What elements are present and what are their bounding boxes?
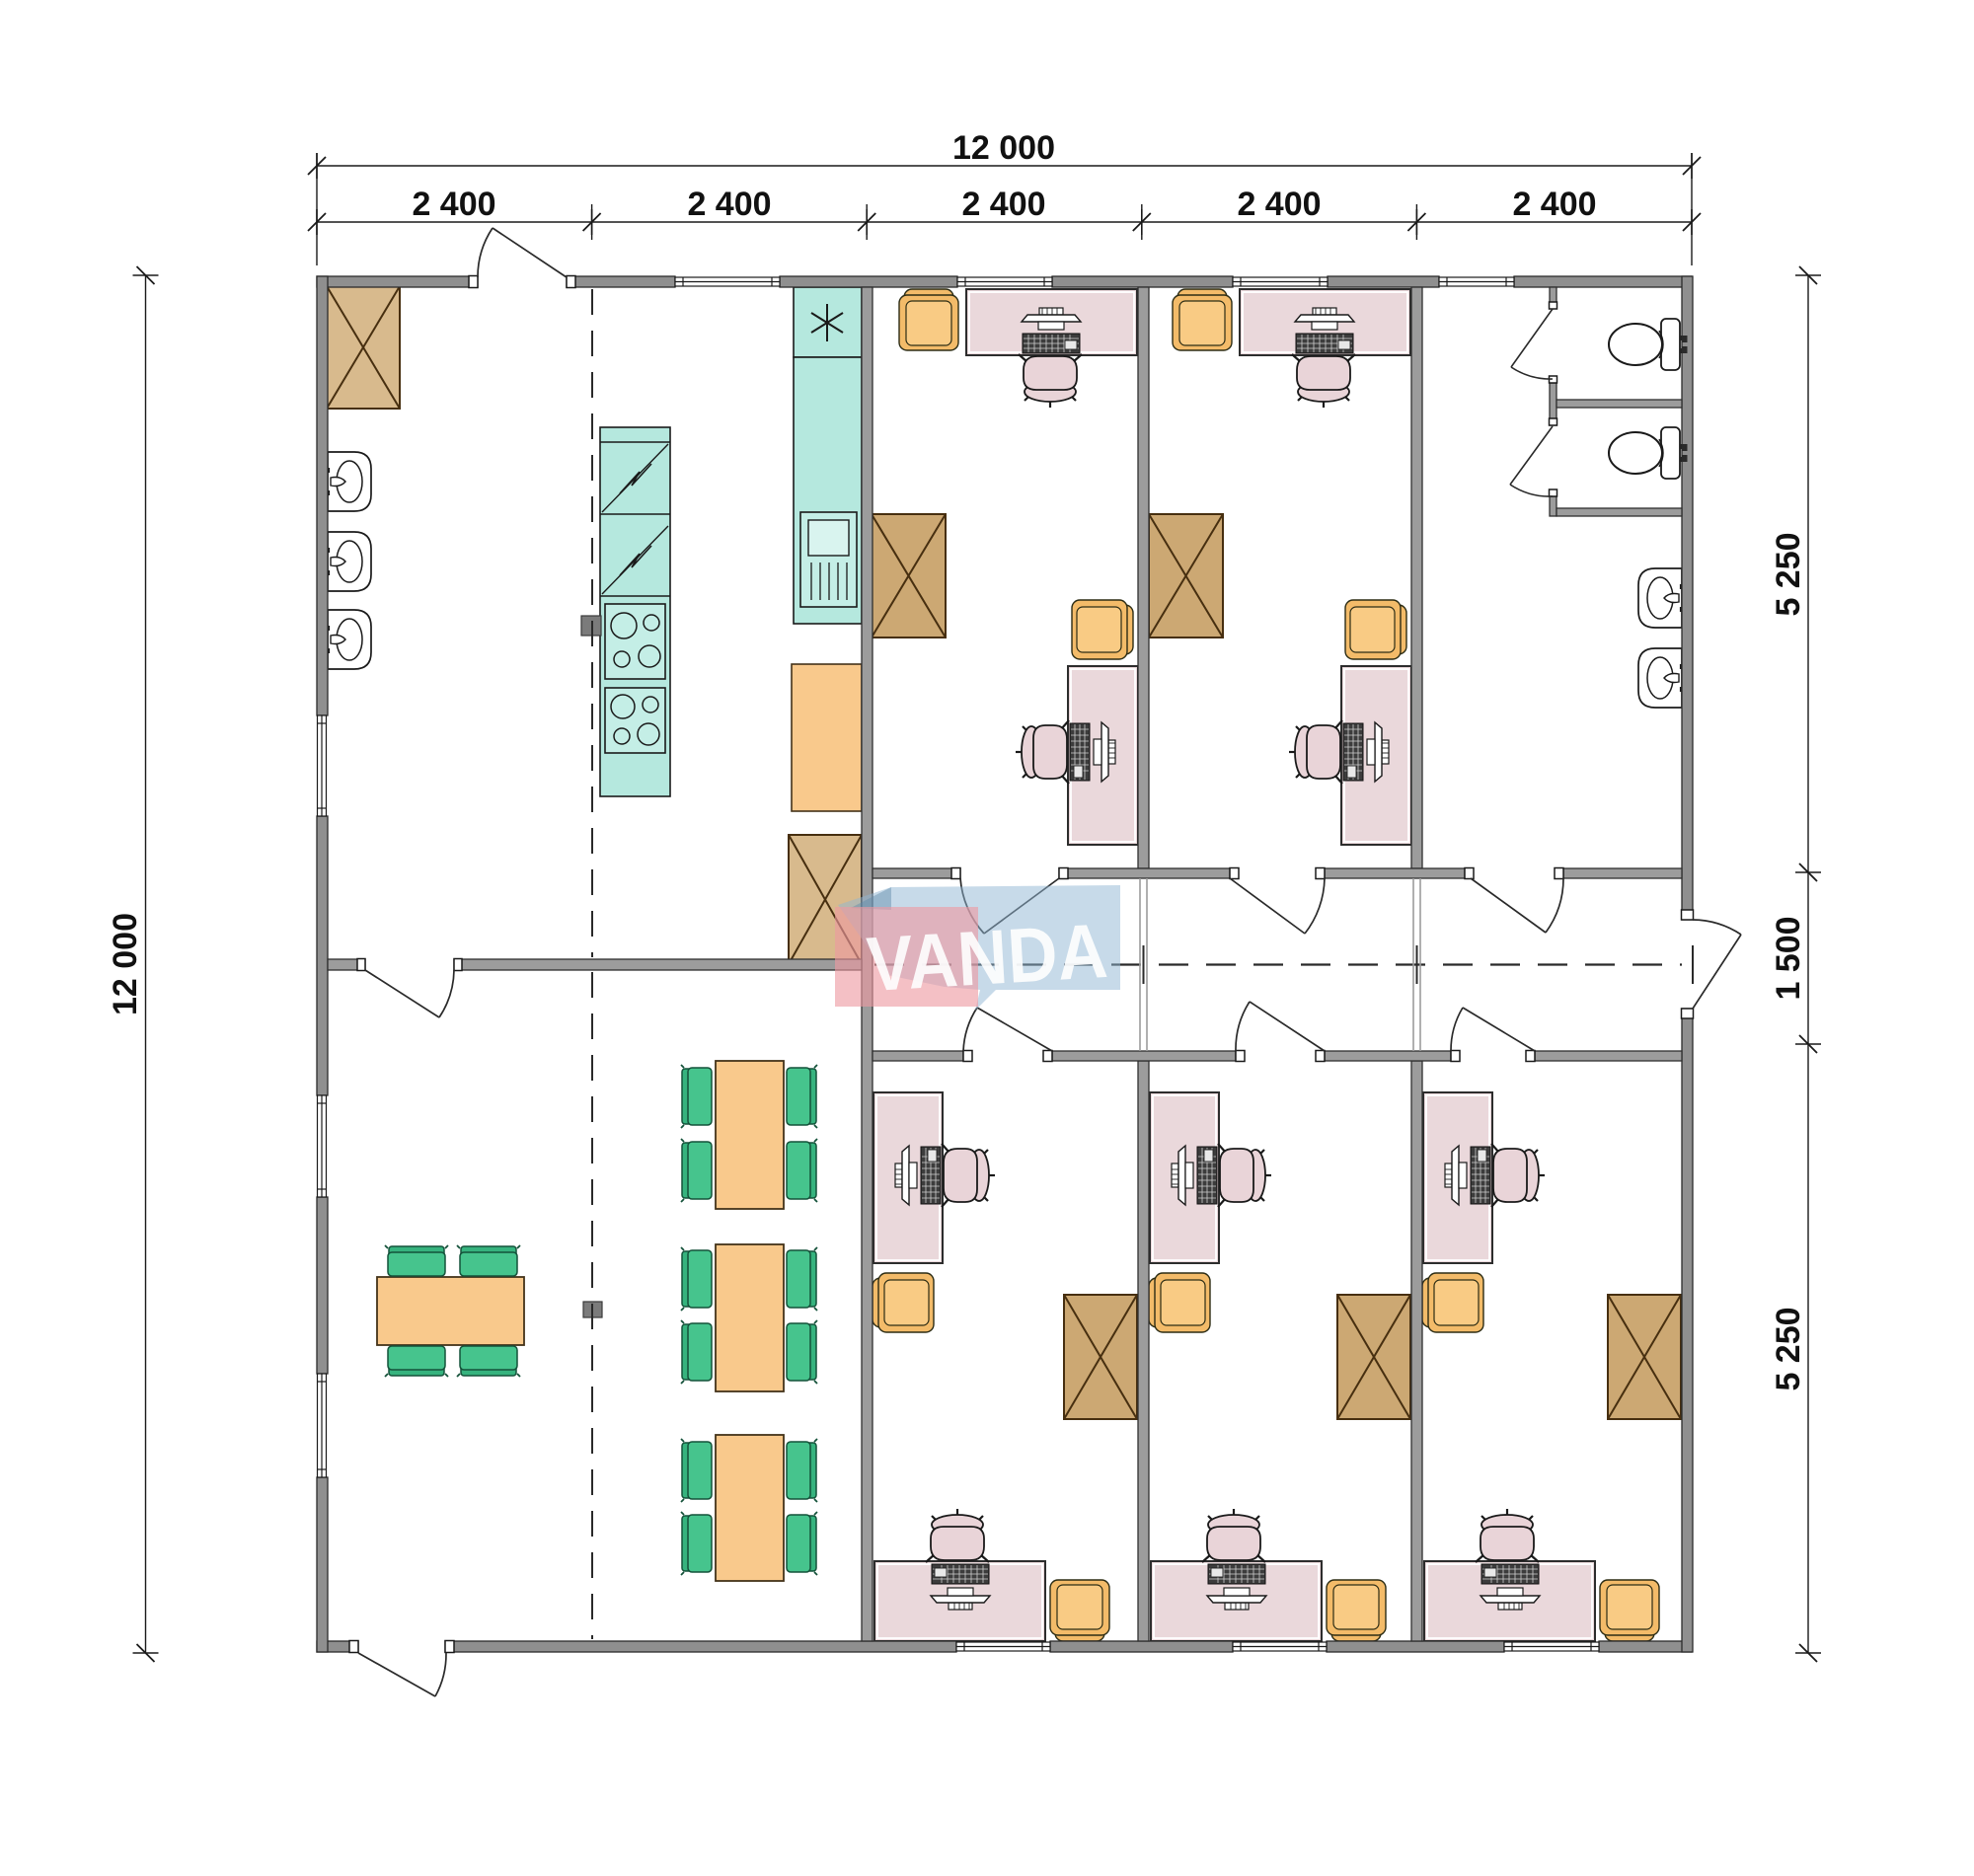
svg-text:2 400: 2 400 <box>1512 186 1596 223</box>
svg-text:5 250: 5 250 <box>1770 1307 1807 1390</box>
svg-text:2 400: 2 400 <box>961 186 1045 223</box>
svg-text:5 250: 5 250 <box>1770 532 1807 616</box>
svg-text:2 400: 2 400 <box>412 186 495 223</box>
svg-text:1 500: 1 500 <box>1770 916 1807 1000</box>
svg-text:VANDA: VANDA <box>865 907 1110 1008</box>
svg-text:12 000: 12 000 <box>952 129 1055 167</box>
svg-text:2 400: 2 400 <box>687 186 771 223</box>
svg-text:2 400: 2 400 <box>1237 186 1321 223</box>
svg-text:12 000: 12 000 <box>107 913 144 1015</box>
